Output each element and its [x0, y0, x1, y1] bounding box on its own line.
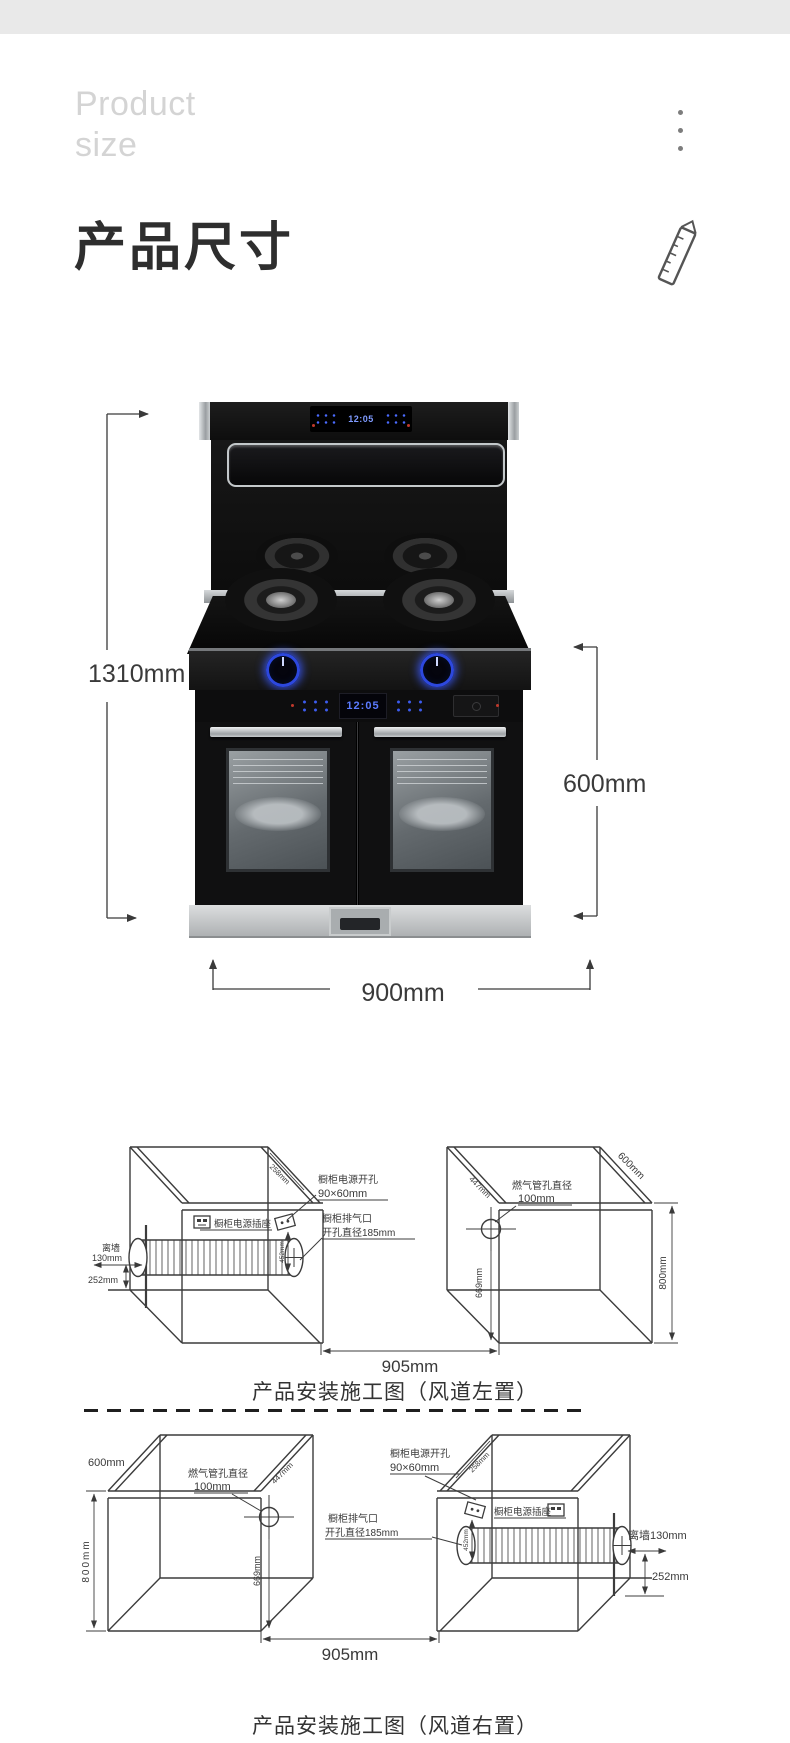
vent-label-2: 开孔直径185mm	[322, 1226, 395, 1239]
depth-447-label: 447mm	[270, 1460, 295, 1485]
wall-offset-label-1: 离墙	[102, 1242, 120, 1253]
power-hole-label-1: 橱柜电源开孔	[390, 1447, 450, 1460]
floor-offset-label: 252mm	[652, 1571, 689, 1583]
floor-offset-label: 252mm	[88, 1275, 118, 1285]
power-hole-label-2: 90×60mm	[390, 1462, 439, 1474]
power-offset-label: 258mm	[268, 1162, 292, 1186]
socket-label: 橱柜电源插座	[214, 1218, 272, 1230]
gas-height-label: 669mm	[474, 1268, 484, 1298]
power-opening-icon	[465, 1502, 485, 1518]
depth-600-label: 600mm	[615, 1151, 646, 1182]
exhaust-duct	[129, 1239, 303, 1277]
power-hole-label-1: 橱柜电源开孔	[318, 1173, 378, 1186]
gas-height-label: 669mm	[252, 1556, 262, 1586]
wall-offset-label: 离墙130mm	[628, 1528, 687, 1542]
wall-offset-label-2: 130mm	[92, 1253, 122, 1263]
gas-label-2: 100mm	[518, 1193, 555, 1205]
power-opening-icon	[275, 1214, 295, 1230]
vent-label-2: 开孔直径185mm	[325, 1526, 398, 1539]
gas-label-1: 燃气管孔直径	[512, 1179, 572, 1192]
diagram-right-caption: 产品安装施工图（风道右置）	[0, 1710, 790, 1740]
cabinet-height-label: 800mm	[658, 1256, 669, 1289]
vent-drop-label: 452mm	[463, 1529, 470, 1551]
cabinet-socket: 橱柜电源插座	[494, 1504, 566, 1518]
product-dimensions: 1310mm 600mm 900mm	[0, 0, 790, 1010]
depth-447-label: 447mm	[467, 1175, 492, 1200]
cabinet-height-label: 800mm	[81, 1539, 92, 1582]
vent-label-1: 橱柜排气口	[322, 1212, 372, 1225]
dashed-divider	[84, 1409, 582, 1412]
right-cabinet-wireframe	[447, 1147, 652, 1343]
gap-label: 905mm	[322, 1645, 379, 1664]
install-diagram-duct-right: 600mm 800mm 燃气管孔直径 100mm 447mm 669mm 905…	[80, 1428, 680, 1668]
depth-600-label: 600mm	[88, 1457, 125, 1469]
dim-width-label: 900mm	[361, 979, 444, 1007]
power-hole-label-2: 90×60mm	[318, 1188, 367, 1200]
gas-label-2: 100mm	[194, 1481, 231, 1493]
dim-front-height-label: 600mm	[563, 770, 646, 798]
gas-label-1: 燃气管孔直径	[188, 1467, 248, 1480]
cabinet-socket: 橱柜电源插座	[194, 1216, 272, 1230]
left-cabinet-wireframe	[108, 1435, 313, 1631]
dim-height-label: 1310mm	[88, 660, 185, 688]
vent-drop-label: 452mm	[279, 1241, 286, 1263]
vent-label-1: 橱柜排气口	[328, 1512, 378, 1525]
gap-label: 905mm	[382, 1357, 439, 1376]
exhaust-duct	[457, 1527, 631, 1565]
socket-label: 橱柜电源插座	[494, 1506, 552, 1518]
page: Product size 产品尺寸 12:05	[0, 0, 790, 1743]
diagram-left-caption: 产品安装施工图（风道左置）	[0, 1376, 790, 1406]
install-diagram-duct-left: 橱柜电源插座 452mm 258mm 橱柜电源开孔 90×60mm 橱柜排气口 …	[80, 1025, 680, 1377]
